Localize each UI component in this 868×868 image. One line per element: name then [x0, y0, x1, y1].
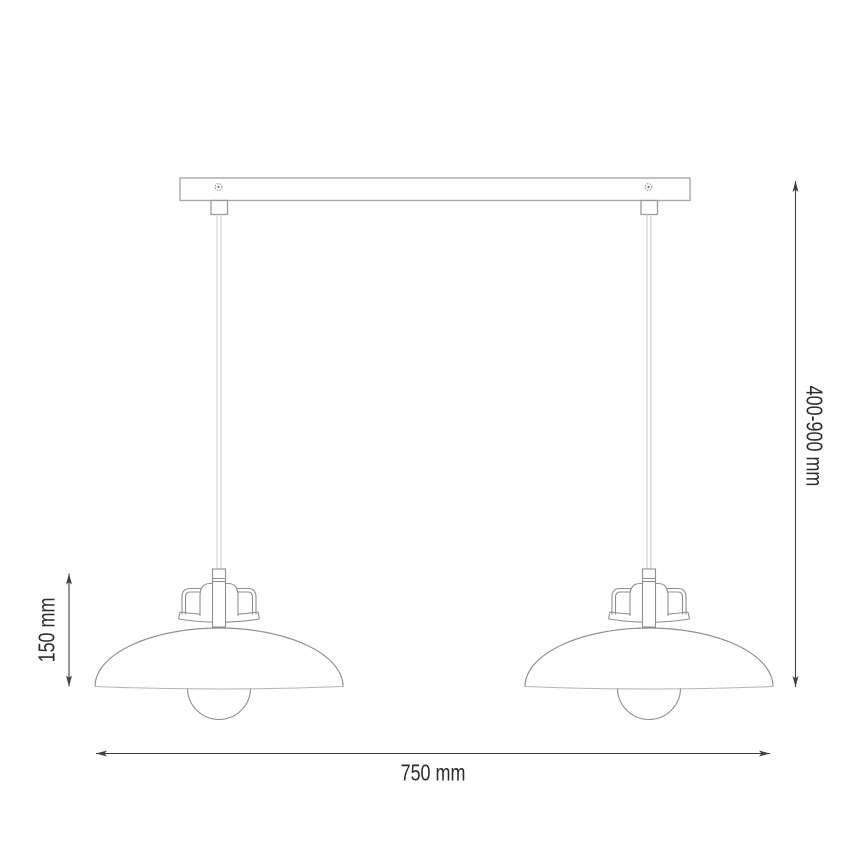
cord-connector-right: [641, 201, 658, 215]
ceiling-mount-bar: [180, 178, 690, 201]
mount-screw-right: [645, 184, 652, 191]
suspension-cord-right: [647, 215, 651, 571]
cord-connector-left: [211, 201, 228, 215]
dimension-label-drop: 400-900 mm: [803, 386, 826, 487]
suspension-cord-left: [217, 215, 221, 571]
dimension-label-width: 750 mm: [401, 762, 466, 785]
mount-screw-left: [215, 184, 222, 191]
pendant-lamp-left: [95, 569, 343, 720]
dimension-label-shade-height: 150 mm: [36, 598, 59, 663]
pendant-lamp-right: [525, 569, 773, 720]
pendant-lamp-diagram: [0, 0, 868, 868]
dimension-drawing-page: { "diagram": { "title": "double pendant …: [0, 0, 868, 868]
